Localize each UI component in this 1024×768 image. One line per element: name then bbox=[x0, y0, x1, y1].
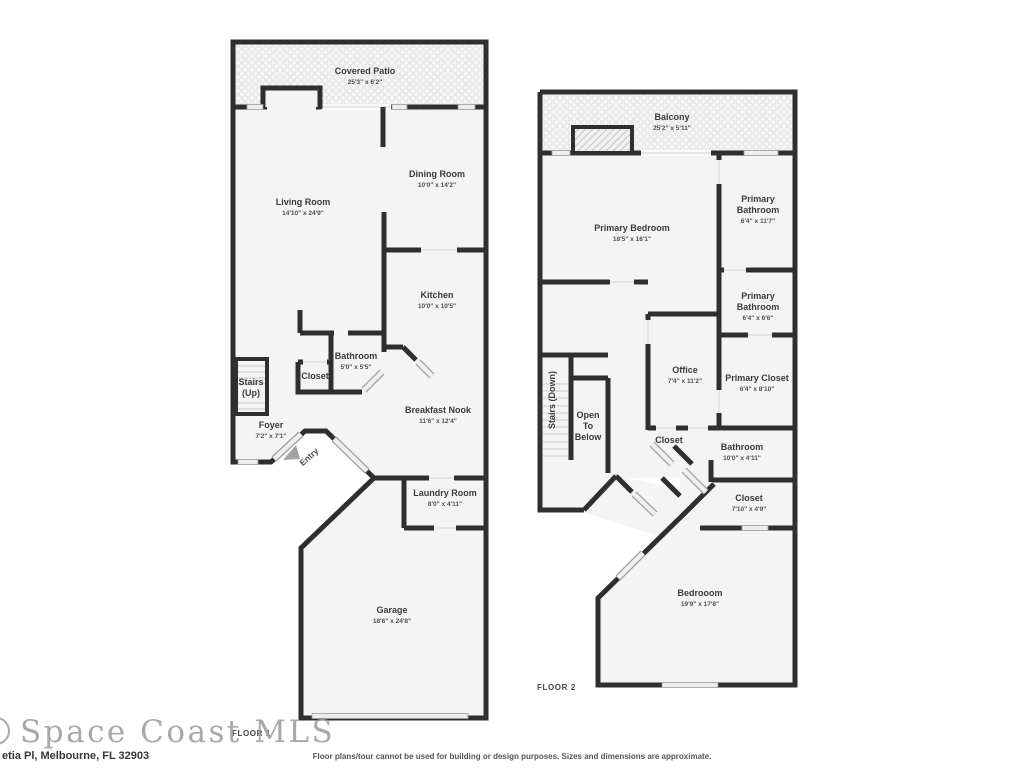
bathroom2-dims: 10'0" x 4'11" bbox=[723, 455, 761, 462]
garage-label: Garage bbox=[376, 605, 407, 615]
entry-label: Entry bbox=[298, 446, 321, 468]
property-address: etia Pl, Melbourne, FL 32903 bbox=[2, 750, 149, 762]
primary-closet-label: Primary Closet bbox=[725, 373, 789, 383]
dining-room-dims: 10'0" x 14'2" bbox=[418, 182, 456, 189]
laundry-room-label: Laundry Room bbox=[413, 488, 477, 498]
balcony-dims: 25'2" x 5'11" bbox=[653, 125, 691, 132]
footer: Space Coast MLS etia Pl, Melbourne, FL 3… bbox=[0, 714, 711, 762]
office-dims: 7'4" x 11'2" bbox=[668, 378, 702, 385]
foyer-dims: 7'2" x 7'1" bbox=[256, 433, 287, 440]
closet1-label: Closet bbox=[301, 371, 329, 381]
floor1-footprint bbox=[233, 42, 486, 718]
stairs-down-label: Stairs (Down) bbox=[547, 371, 557, 429]
garage-door bbox=[312, 714, 468, 719]
laundry-room-dims: 8'0" x 4'11" bbox=[428, 501, 462, 508]
chimney-box bbox=[573, 127, 632, 153]
floor2-caption: FLOOR 2 bbox=[537, 683, 576, 692]
bedroom2-label: Bedrooom bbox=[678, 588, 723, 598]
primary-closet-dims: 6'4" x 8'10" bbox=[740, 386, 775, 393]
closet-b-dims: 7'10" x 4'9" bbox=[732, 506, 767, 513]
primary-bathroom2-dims: 6'4" x 6'6" bbox=[743, 315, 774, 322]
floor2-plan: Balcony 25'2" x 5'11" Primary Bedroom 18… bbox=[537, 92, 795, 692]
primary-bathroom2-label-1: Primary bbox=[741, 291, 775, 301]
office-label: Office bbox=[672, 365, 698, 375]
floor-plan-page: Covered Patio 25'3" x 6'2" Living Room 1… bbox=[0, 0, 1024, 768]
primary-bedroom-dims: 18'5" x 16'1" bbox=[613, 236, 651, 243]
closet-a-label: Closet bbox=[655, 435, 683, 445]
primary-bathroom1-label-2: Bathroom bbox=[737, 205, 780, 215]
living-room-dims: 14'10" x 24'9" bbox=[282, 210, 324, 217]
mls-logo: Space Coast MLS bbox=[20, 714, 335, 750]
open-to-below-label-3: Below bbox=[575, 432, 603, 442]
kitchen-dims: 10'0" x 10'5" bbox=[418, 303, 456, 310]
logo-mark-partial-icon bbox=[0, 718, 9, 744]
bathroom1-dims: 5'0" x 5'5" bbox=[341, 364, 372, 371]
primary-bathroom1-label-1: Primary bbox=[741, 194, 775, 204]
foyer-label: Foyer bbox=[259, 420, 284, 430]
stairs-up-label-2: (Up) bbox=[242, 388, 260, 398]
bathroom2-label: Bathroom bbox=[721, 442, 764, 452]
closet-b-label: Closet bbox=[735, 493, 763, 503]
primary-bedroom-label: Primary Bedroom bbox=[594, 223, 670, 233]
floor-plan-canvas: Covered Patio 25'3" x 6'2" Living Room 1… bbox=[0, 0, 1024, 768]
bedroom2-dims: 19'9" x 17'8" bbox=[681, 601, 719, 608]
covered-patio-label: Covered Patio bbox=[335, 66, 396, 76]
garage-dims: 18'6" x 24'8" bbox=[373, 618, 411, 625]
dining-room-label: Dining Room bbox=[409, 169, 465, 179]
open-to-below-label-1: Open bbox=[576, 410, 599, 420]
floor1-plan: Covered Patio 25'3" x 6'2" Living Room 1… bbox=[232, 42, 486, 738]
primary-bathroom1-dims: 6'4" x 11'7" bbox=[741, 218, 775, 225]
stairs-up-label-1: Stairs bbox=[238, 377, 263, 387]
open-to-below-label-2: To bbox=[583, 421, 594, 431]
covered-patio-dims: 25'3" x 6'2" bbox=[348, 79, 383, 86]
primary-bathroom2-label-2: Bathroom bbox=[737, 302, 780, 312]
bathroom1-label: Bathroom bbox=[335, 351, 378, 361]
breakfast-nook-label: Breakfast Nook bbox=[405, 405, 472, 415]
kitchen-label: Kitchen bbox=[420, 290, 453, 300]
disclaimer-text: Floor plans/tour cannot be used for buil… bbox=[313, 752, 712, 761]
balcony-label: Balcony bbox=[654, 112, 689, 122]
breakfast-nook-dims: 11'6" x 12'4" bbox=[419, 418, 457, 425]
living-room-label: Living Room bbox=[276, 197, 331, 207]
